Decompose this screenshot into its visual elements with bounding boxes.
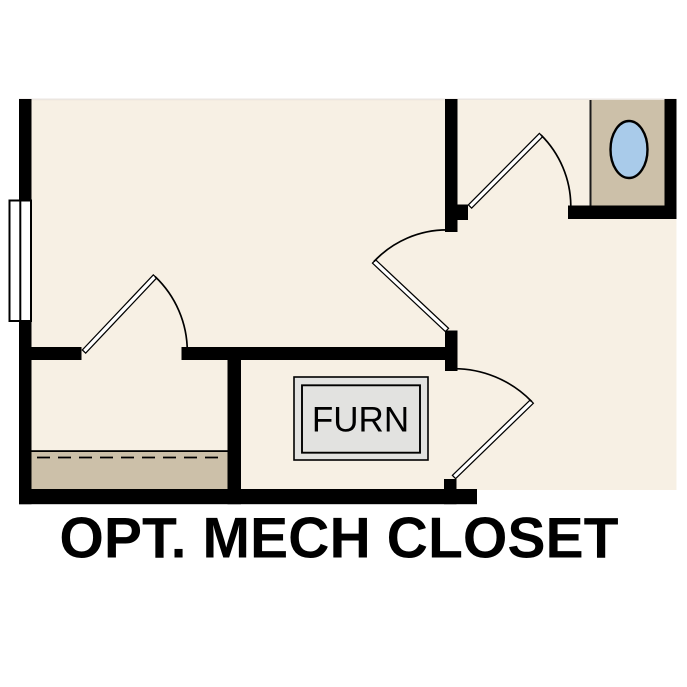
svg-text:FURN: FURN: [312, 401, 409, 440]
svg-text:OPT. MECH CLOSET: OPT. MECH CLOSET: [59, 507, 618, 571]
